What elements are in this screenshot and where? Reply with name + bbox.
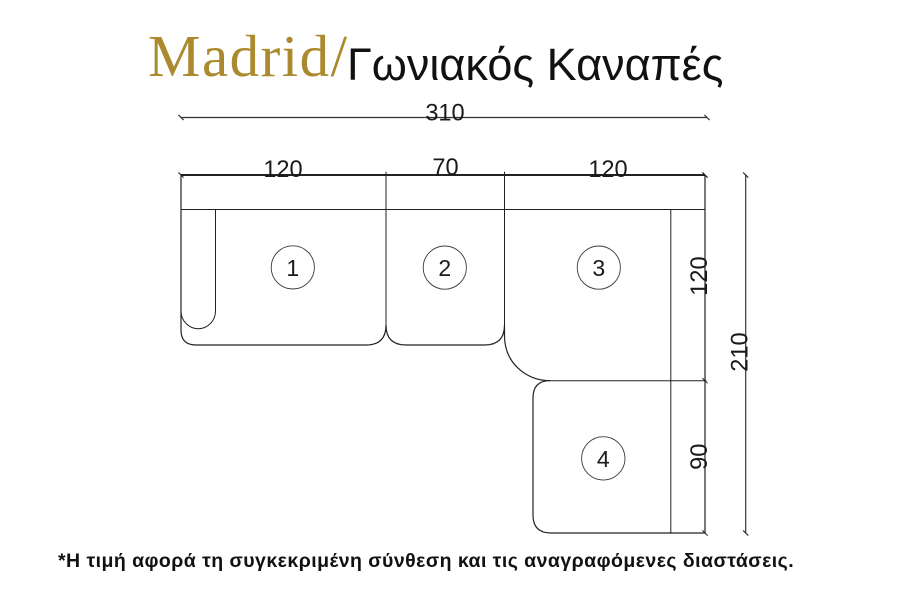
svg-text:3: 3 [592,255,605,281]
svg-text:310: 310 [425,101,464,127]
svg-text:*Η τιμή αφορά τη συγκεκριμένη: *Η τιμή αφορά τη συγκεκριμένη σύνθεση κα… [58,550,794,572]
svg-text:120: 120 [588,157,627,183]
svg-text:120: 120 [687,256,713,295]
svg-text:4: 4 [597,446,610,472]
svg-text:2: 2 [438,255,451,281]
svg-text:Γωνιακός Καναπές: Γωνιακός Καναπές [347,39,723,90]
svg-text:1: 1 [286,255,299,281]
svg-text:210: 210 [728,332,754,371]
svg-text:90: 90 [687,444,713,470]
svg-text:70: 70 [432,155,458,181]
svg-text:120: 120 [263,157,302,183]
svg-text:Madrid/: Madrid/ [148,23,349,89]
